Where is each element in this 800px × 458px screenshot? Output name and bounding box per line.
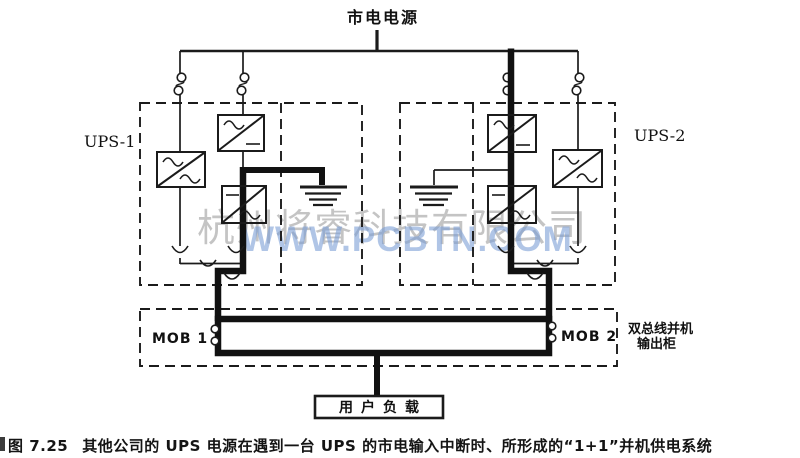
battery-banks: [300, 187, 458, 205]
mob2-label: MOB 2: [561, 329, 617, 345]
ups2-label: UPS-2: [634, 126, 685, 145]
mob1-contact-lower: [211, 337, 219, 345]
mob2-contact-upper: [548, 322, 556, 330]
ups2-battery-symbol: [410, 187, 458, 205]
ups2-bypass-switch-block: [553, 150, 602, 187]
converter-blocks: [157, 115, 602, 223]
mob1-contact-upper: [211, 325, 219, 333]
mob1-label: MOB 1: [152, 331, 208, 347]
ups1-rectifier-block: [218, 115, 264, 151]
ups-parallel-system-schematic: 市电电源 UPS-1 UPS-2 MOB 1 MOB 2 双总线并机 输出柜 用…: [0, 0, 800, 430]
figure-number: 图 7.25: [8, 437, 68, 455]
scanned-diagram-page: 杭州将睿科技有限公司 WWW.PCBTN.COM: [0, 0, 800, 458]
ups1-battery-symbol: [300, 187, 347, 205]
figure-caption: 图 7.25其他公司的 UPS 电源在遇到一台 UPS 的市电输入中断时、所形成…: [8, 435, 796, 456]
mob2-contact-lower: [548, 334, 556, 342]
ups1-bypass-switch-block: [157, 152, 205, 187]
figure-caption-text: 其他公司的 UPS 电源在遇到一台 UPS 的市电输入中断时、所形成的“1+1”…: [82, 437, 712, 455]
ups2-input-thick-path: [511, 49, 549, 322]
output-cabinet-label-line2: 输出柜: [637, 336, 676, 352]
thin-wiring: [180, 30, 578, 264]
load-label: 用户负载: [339, 399, 427, 416]
ups1-battery-feed: [240, 170, 322, 185]
breaker-ups1-main: [237, 73, 249, 95]
dual-bus-ring: [218, 319, 549, 353]
scan-artifact: [0, 437, 5, 451]
ups1-label: UPS-1: [84, 132, 135, 151]
output-cabinet-label-line1: 双总线并机: [628, 321, 693, 337]
mains-label: 市电电源: [347, 8, 419, 27]
breaker-ups1-bypass: [174, 73, 186, 95]
input-breakers: [174, 73, 584, 95]
breaker-ups2-bypass: [572, 73, 584, 95]
